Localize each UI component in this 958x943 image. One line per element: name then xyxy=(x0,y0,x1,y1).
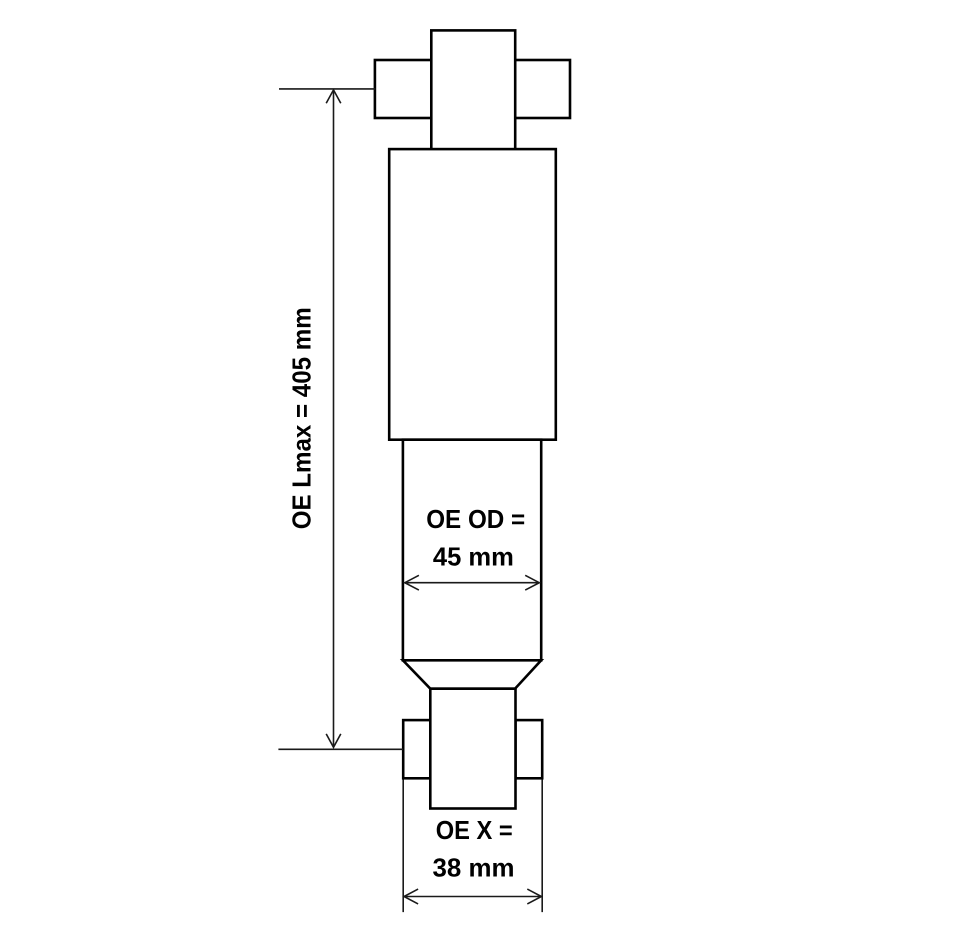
svg-text:OE Lmax = 405 mm: OE Lmax = 405 mm xyxy=(287,307,317,529)
svg-text:38 mm: 38 mm xyxy=(433,852,515,882)
svg-text:OE OD =: OE OD = xyxy=(426,504,525,534)
svg-text:45 mm: 45 mm xyxy=(433,541,514,571)
svg-text:OE X =: OE X = xyxy=(436,815,513,845)
